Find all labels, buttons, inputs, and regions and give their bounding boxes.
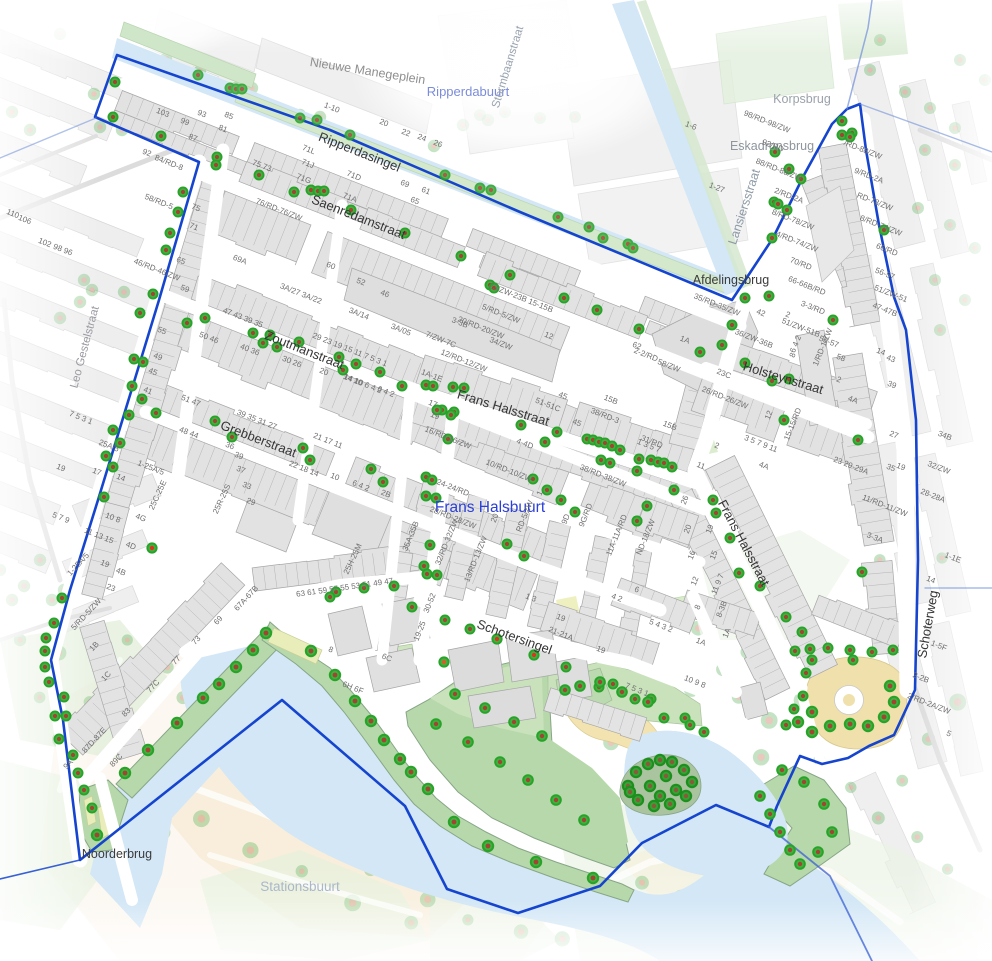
svg-text:Stationsbuurt: Stationsbuurt bbox=[260, 879, 340, 894]
svg-text:Noorderbrug: Noorderbrug bbox=[82, 847, 152, 861]
svg-text:Korpsbrug: Korpsbrug bbox=[773, 92, 831, 106]
svg-text:Afdelingsbrug: Afdelingsbrug bbox=[693, 273, 769, 287]
